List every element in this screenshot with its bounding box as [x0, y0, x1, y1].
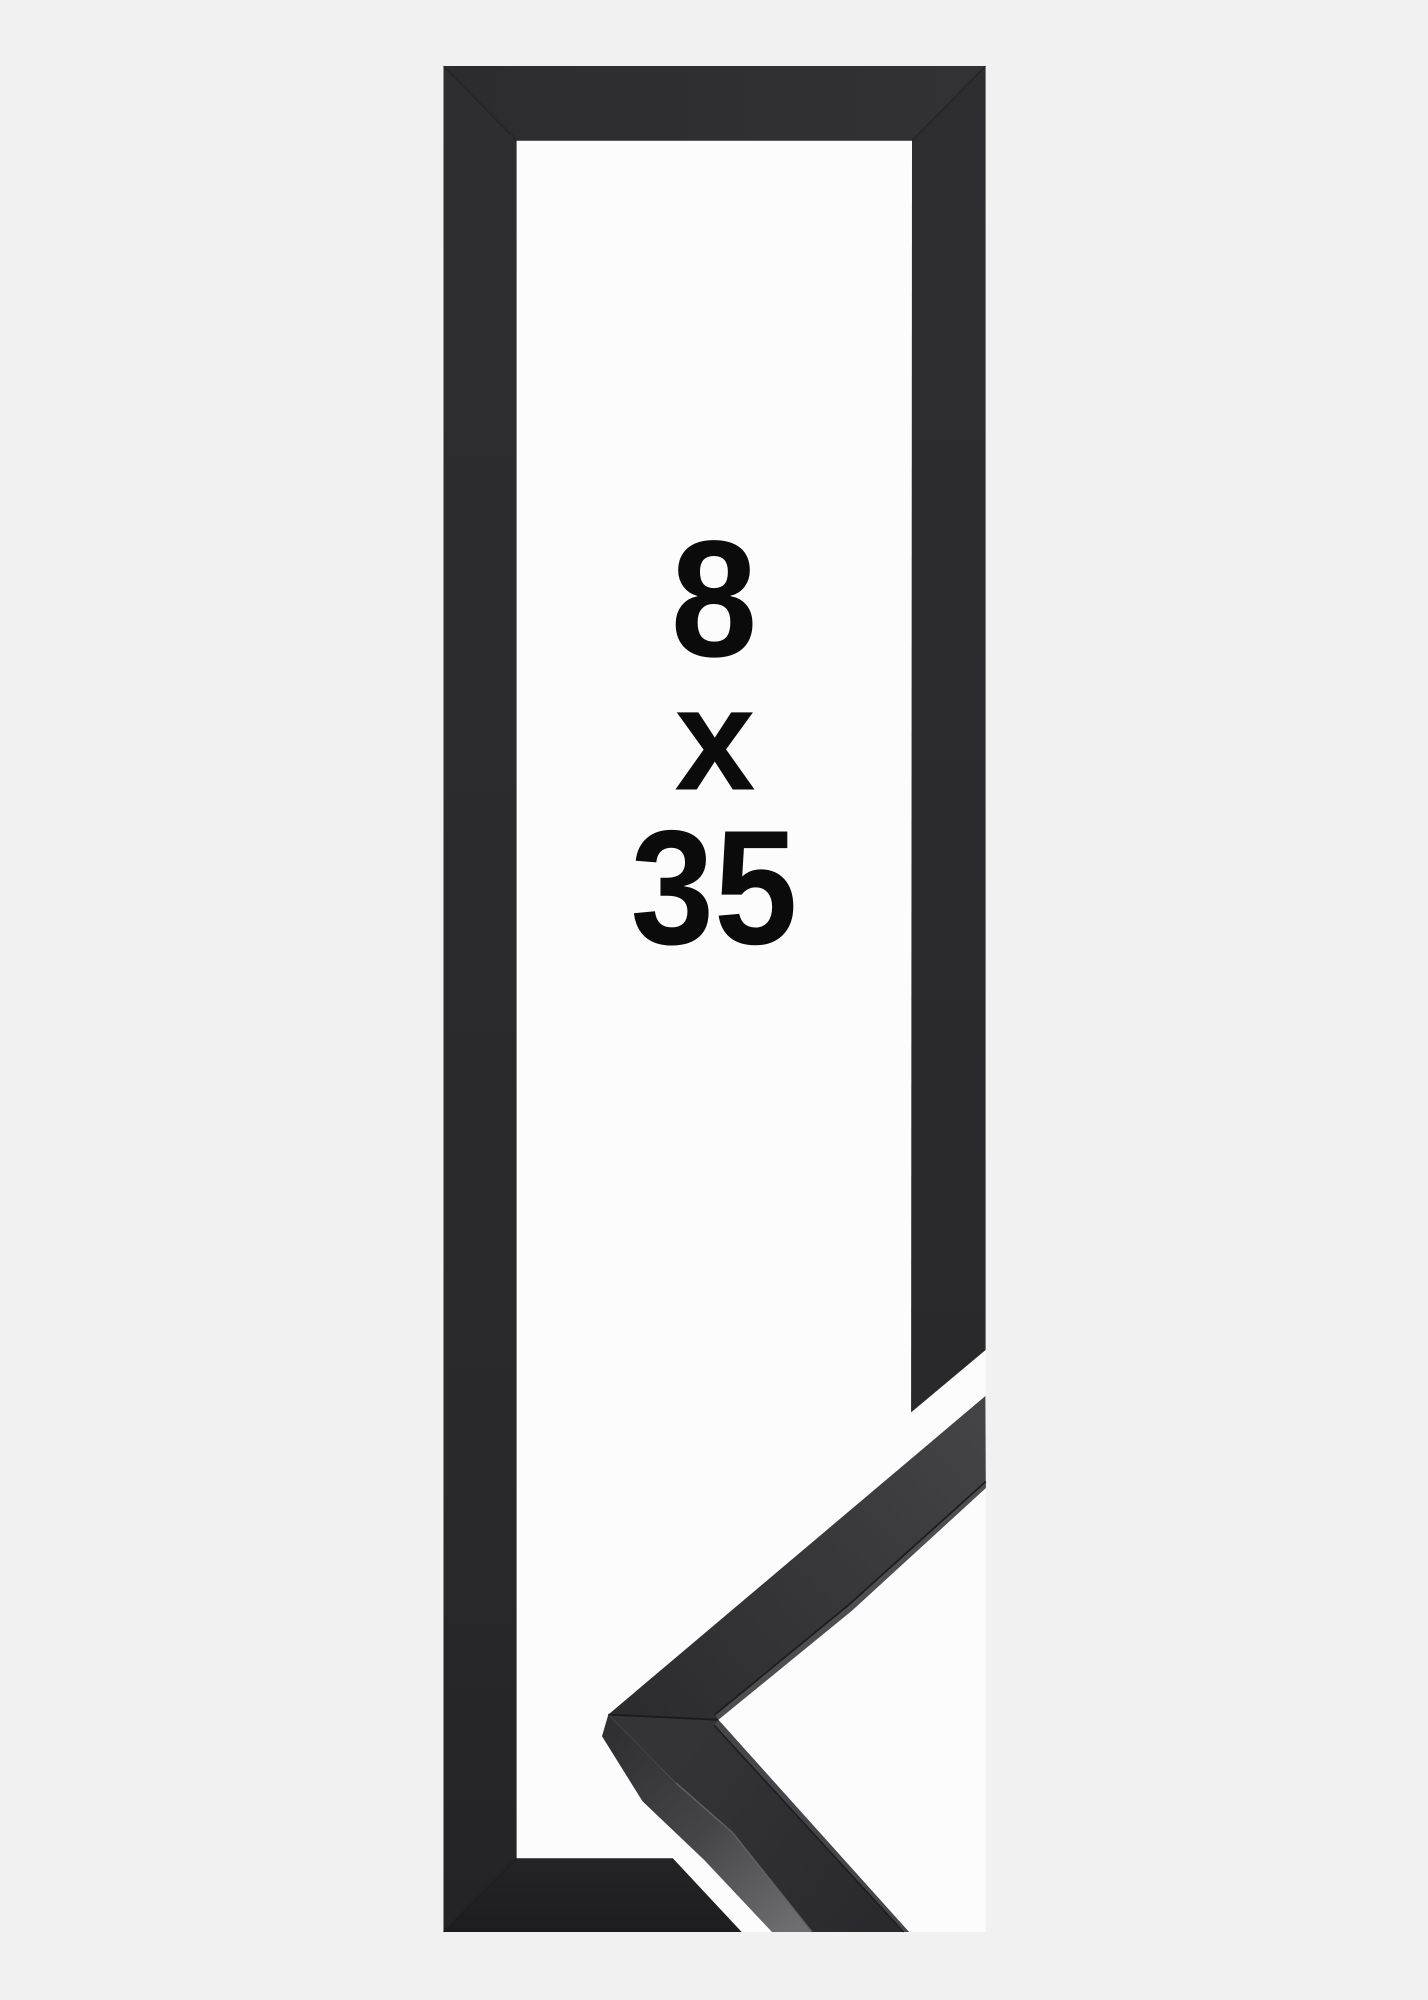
svg-text:35: 35	[631, 796, 798, 979]
